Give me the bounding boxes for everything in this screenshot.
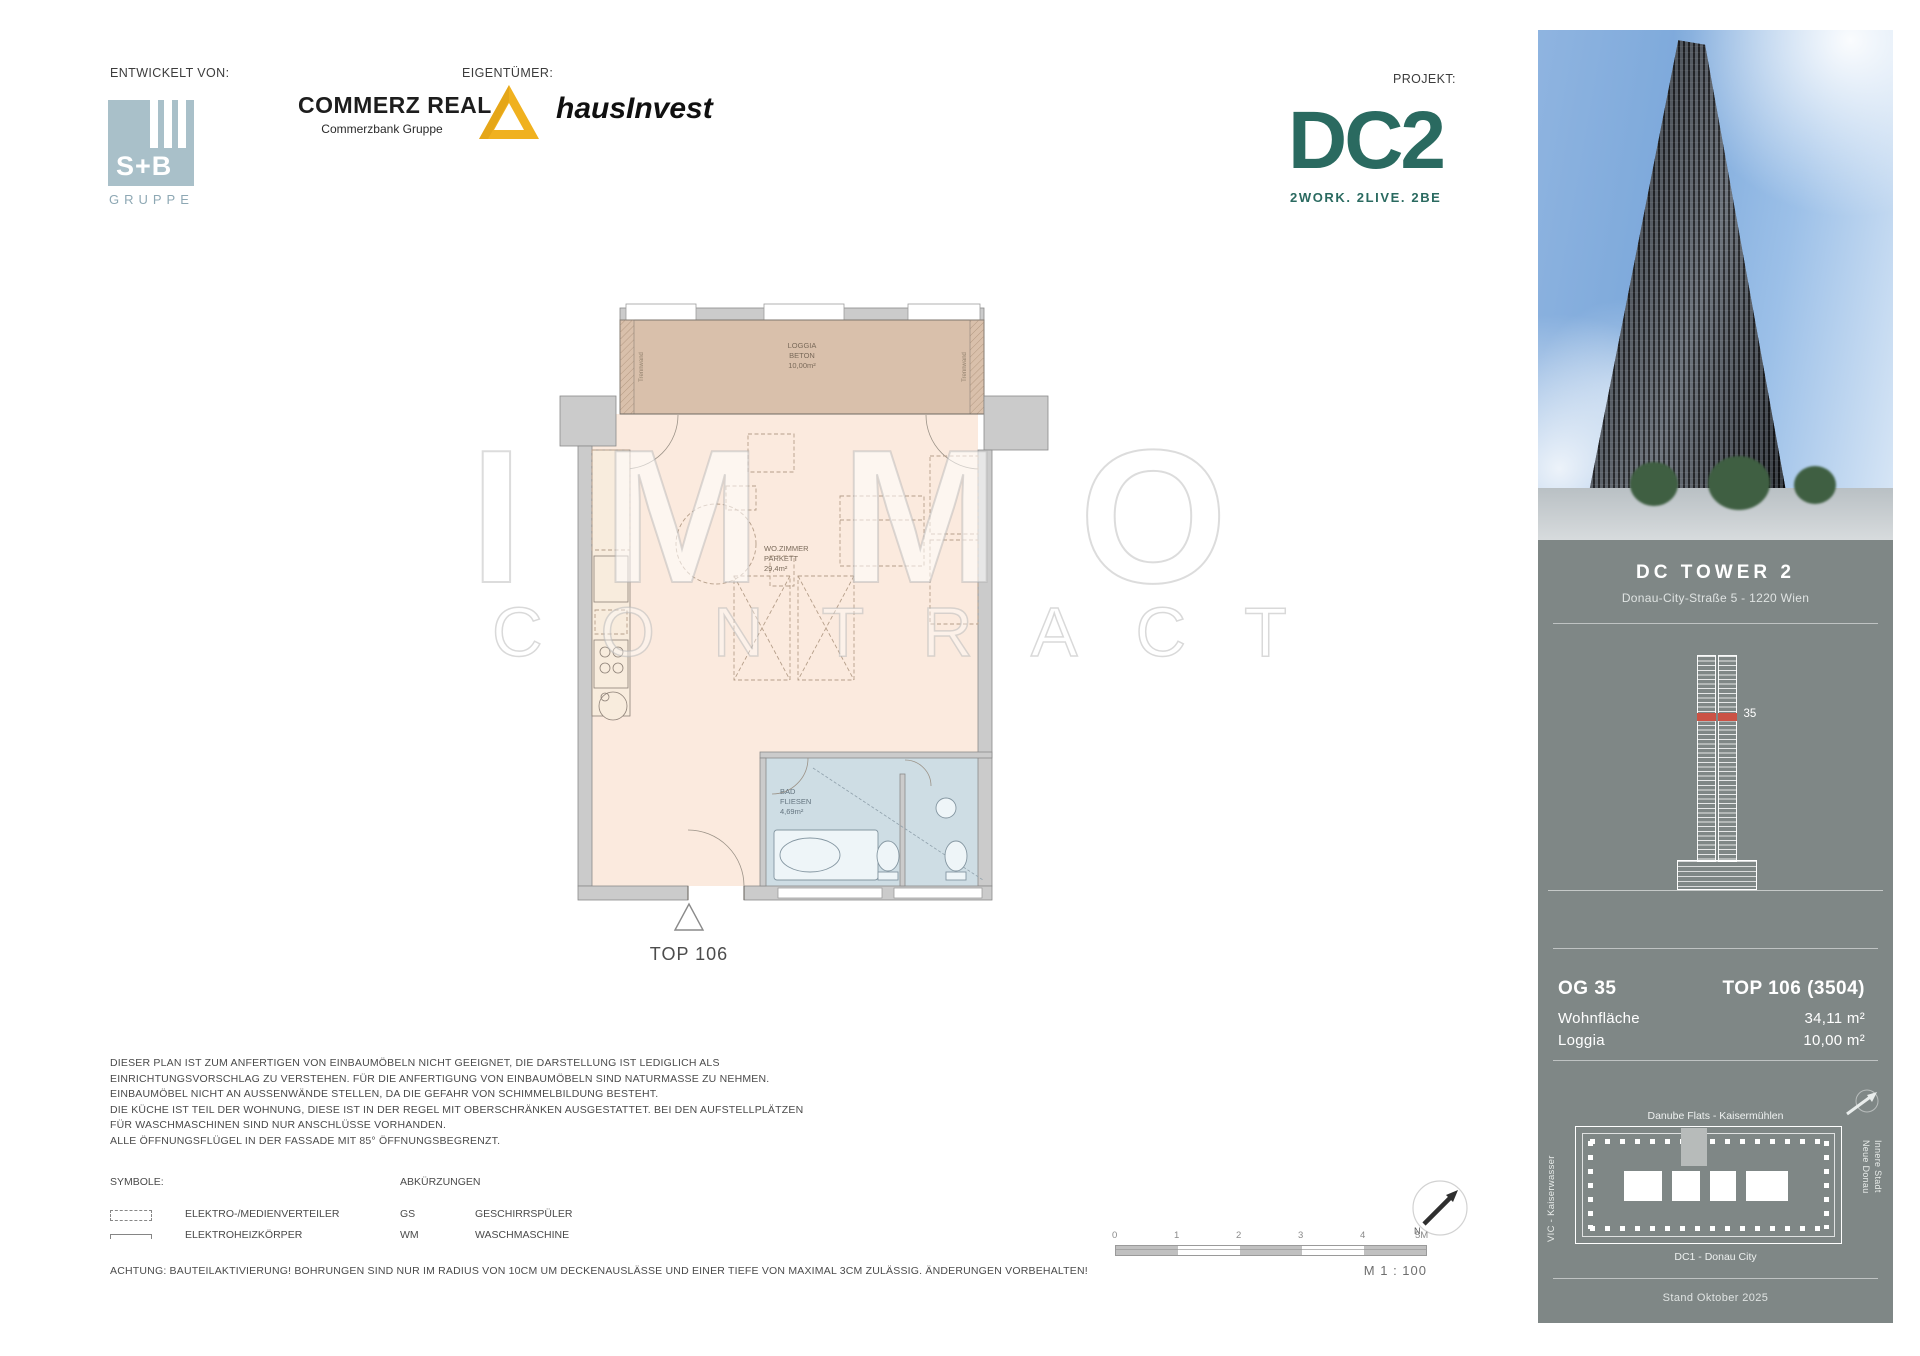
unit-floor: OG 35: [1558, 978, 1616, 1000]
siteplan-inner-outline: [1582, 1133, 1835, 1237]
partition-label-right: Trennwand: [962, 352, 968, 382]
scale-tick: 3: [1298, 1230, 1303, 1241]
partition-label-left: Trennwand: [639, 352, 645, 382]
column-row: [1590, 1139, 1827, 1144]
sb-logo-bar: [150, 100, 158, 148]
note-line: EINRICHTUNGSVORSCHLAG ZU VERSTEHEN. FÜR …: [110, 1072, 803, 1088]
sb-gruppe-label: GRUPPE: [109, 192, 194, 207]
unit-label: TOP 106: [650, 944, 728, 964]
row-label: Loggia: [1558, 1032, 1605, 1049]
small-sink: [936, 798, 956, 818]
disclaimer-notes: DIESER PLAN IST ZUM ANFERTIGEN VON EINBA…: [110, 1056, 803, 1150]
note-line: DIE KÜCHE IST TEIL DER WOHNUNG, DIESE IS…: [110, 1103, 803, 1119]
abbr-key: WM: [400, 1229, 419, 1241]
loggia-name: LOGGIA: [788, 341, 817, 350]
scale-tick: 1: [1174, 1230, 1179, 1241]
column-row: [1590, 1226, 1827, 1231]
abbreviations-header: ABKÜRZUNGEN: [400, 1176, 481, 1188]
row-value: 10,00 m²: [1803, 1032, 1865, 1049]
unit-info-row: Wohnfläche 34,11 m²: [1558, 1010, 1865, 1027]
highlighted-floor-marker: [1718, 713, 1737, 721]
developed-by-label: ENTWICKELT VON:: [110, 66, 229, 80]
row-value: 34,11 m²: [1805, 1010, 1865, 1027]
floor-number: 35: [1744, 708, 1757, 720]
symbol-label: ELEKTROHEIZKÖRPER: [185, 1229, 302, 1241]
living-floor: PARKETT: [764, 554, 798, 563]
tree: [1708, 456, 1770, 510]
divider: [1553, 1060, 1878, 1061]
highlighted-unit: [1681, 1128, 1707, 1166]
commerz-real-name: COMMERZ REAL: [298, 92, 492, 119]
kitchen-zone: [592, 450, 630, 720]
scale-tick: 2: [1236, 1230, 1241, 1241]
divider: [1553, 623, 1878, 624]
siteplan-east-label-2: Innere Stadt: [1873, 1140, 1883, 1240]
scale-tick: 5M: [1415, 1230, 1428, 1241]
row-label: Wohnfläche: [1558, 1010, 1640, 1027]
hausinvest-logo: hausInvest: [556, 92, 713, 126]
divider: [1553, 1278, 1878, 1279]
column-row: [1588, 1141, 1593, 1229]
radiator-symbol-icon: [110, 1234, 152, 1239]
commerzbank-logo-icon: [476, 82, 542, 146]
unit-info-row: OG 35 TOP 106 (3504): [1558, 978, 1865, 1000]
kitchen-sink: [599, 692, 627, 720]
loggia-zone: Trennwand Trennwand LOGGIA BETON 10,00m²: [620, 304, 984, 414]
bath-name: BAD: [780, 787, 796, 796]
scale-bar: 0 1 2 3 4 5M M 1 : 100: [1115, 1230, 1427, 1290]
unit-top: TOP 106 (3504): [1722, 978, 1865, 1000]
scale-tick: 4: [1360, 1230, 1365, 1241]
washbasin: [780, 838, 840, 872]
electro-panel-symbol-icon: [110, 1210, 152, 1221]
tower-podium: [1677, 860, 1757, 890]
page: ENTWICKELT VON: S+B GRUPPE EIGENTÜMER: C…: [0, 0, 1920, 1356]
sidebar-title: DC TOWER 2: [1538, 562, 1893, 584]
project-label: PROJEKT:: [1393, 72, 1456, 86]
wc: [877, 841, 899, 871]
scale-label: M 1 : 100: [1364, 1263, 1427, 1278]
loggia-floor: BETON: [789, 351, 815, 360]
sidebar-address: Donau-City-Straße 5 - 1220 Wien: [1538, 591, 1893, 605]
core-block: [1624, 1171, 1662, 1201]
sb-logo-text: S+B: [116, 151, 172, 182]
siteplan-north-label: Danube Flats - Kaisermühlen: [1538, 1110, 1893, 1122]
tree: [1630, 462, 1678, 506]
core-block: [1672, 1171, 1700, 1201]
living-area: 29,4m²: [764, 564, 788, 573]
tower-photo: [1538, 30, 1893, 540]
core-block: [1746, 1171, 1788, 1201]
living-name: WO.ZIMMER: [764, 544, 809, 553]
note-line: DIESER PLAN IST ZUM ANFERTIGEN VON EINBA…: [110, 1056, 803, 1072]
bath-window: [894, 888, 982, 898]
loggia-window: [764, 304, 844, 320]
unit-info-row: Loggia 10,00 m²: [1558, 1032, 1865, 1049]
column-row: [1824, 1141, 1829, 1229]
bath-floor: FLIESEN: [780, 797, 811, 806]
note-line: EINBAUMÖBEL NICHT AN AUSSENWÄNDE STELLEN…: [110, 1087, 803, 1103]
siteplan-south-label: DC1 - Donau City: [1538, 1251, 1893, 1263]
tower-render: [1588, 40, 1794, 499]
divider: [1553, 948, 1878, 949]
entrance-triangle-icon: [675, 904, 703, 930]
sb-gruppe-logo: S+B: [108, 100, 194, 186]
tower-shaft: [1718, 655, 1737, 862]
siteplan-west-label: VIC - Kaiserwasser: [1546, 1138, 1557, 1242]
unit-marker: TOP 106: [650, 904, 728, 964]
loggia-area: 10,00m²: [788, 361, 816, 370]
floor-plan: Trennwand Trennwand LOGGIA BETON 10,00m²: [558, 288, 1050, 988]
sb-logo-bar: [164, 100, 172, 148]
abbr-label: WASCHMASCHINE: [475, 1229, 569, 1241]
tree: [1794, 466, 1836, 504]
abbr-label: GESCHIRRSPÜLER: [475, 1208, 572, 1220]
project-sidebar: DC TOWER 2 Donau-City-Straße 5 - 1220 Wi…: [1538, 30, 1893, 1323]
note-line: FÜR WASCHMASCHINEN SIND NUR ANSCHLÜSSE V…: [110, 1118, 803, 1134]
tower-shaft: [1697, 655, 1716, 862]
siteplan-east-label-1: Neue Donau: [1861, 1140, 1871, 1240]
scale-bar-segments: [1115, 1245, 1427, 1256]
highlighted-floor-marker: [1697, 713, 1716, 721]
owner-label: EIGENTÜMER:: [462, 66, 553, 80]
symbols-header: SYMBOLE:: [110, 1176, 164, 1188]
abbr-key: GS: [400, 1208, 415, 1220]
dc2-tagline: 2WORK. 2LIVE. 2BE: [1290, 190, 1441, 205]
note-line: ALLE ÖFFNUNGSFLÜGEL IN DER FASSADE MIT 8…: [110, 1134, 803, 1150]
siteplan-building-outline: [1575, 1126, 1842, 1244]
commerz-real-subtitle: Commerzbank Gruppe: [298, 122, 466, 136]
stove: [594, 640, 628, 688]
wc-2: [945, 841, 967, 871]
loggia-window: [908, 304, 980, 320]
scale-tick: 0: [1112, 1230, 1117, 1241]
symbol-label: ELEKTRO-/MEDIENVERTEILER: [185, 1208, 339, 1220]
tower-elevation-diagram: 35: [1641, 655, 1791, 895]
sb-logo-bar: [178, 100, 186, 148]
loggia-window: [626, 304, 696, 320]
warning-note: ACHTUNG: BAUTEILAKTIVIERUNG! BOHRUNGEN S…: [110, 1264, 1088, 1280]
core-block: [1710, 1171, 1736, 1201]
bath-window: [778, 888, 882, 898]
date-label: Stand Oktober 2025: [1538, 1292, 1893, 1304]
dc2-logo: DC2: [1288, 100, 1443, 182]
ground-line: [1548, 890, 1883, 891]
fridge: [594, 556, 628, 602]
bath-area: 4,69m²: [780, 807, 804, 816]
